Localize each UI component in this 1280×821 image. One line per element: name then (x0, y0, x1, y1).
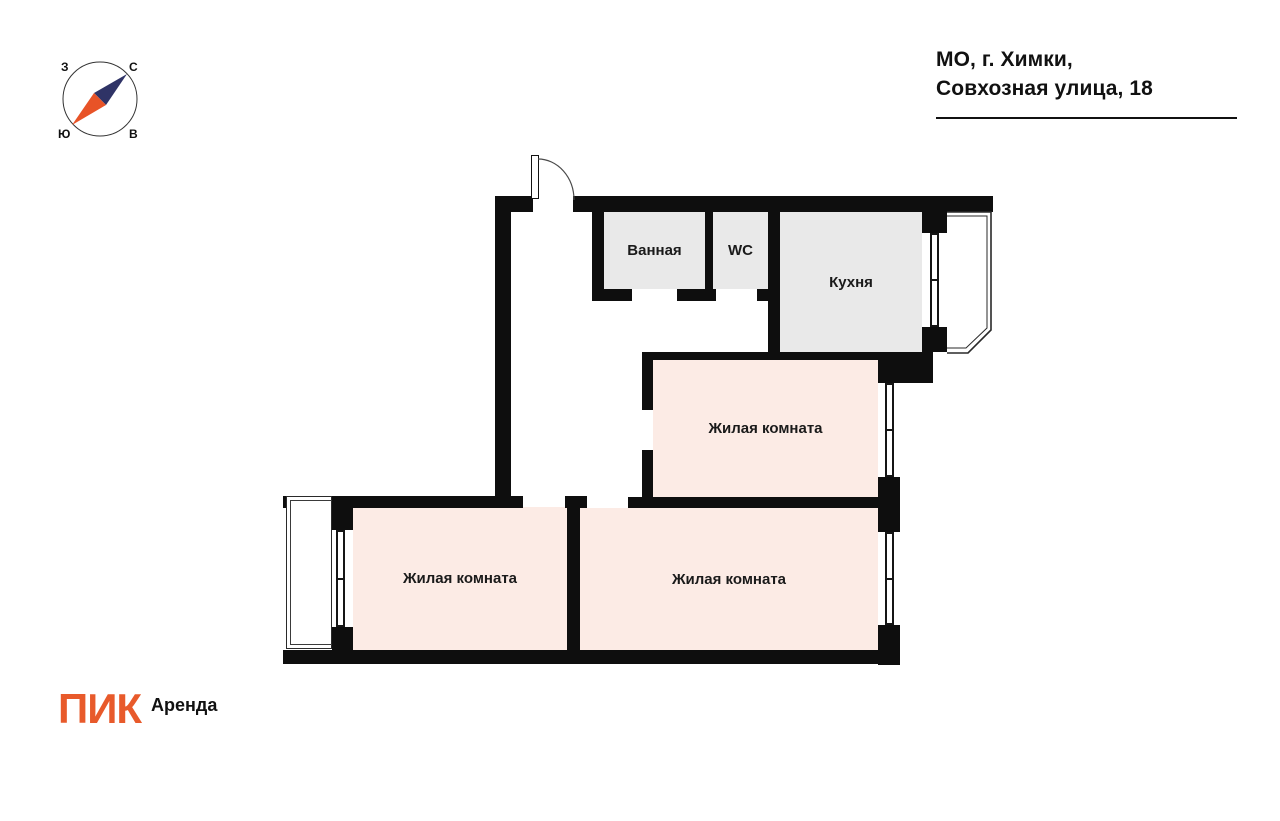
room-living-bottom-left-label: Жилая комната (403, 570, 517, 587)
balcony-left-inner-line (290, 500, 332, 645)
wall (768, 212, 780, 360)
wall (642, 352, 653, 410)
wall (283, 650, 900, 664)
wall (573, 196, 993, 212)
room-living-bottom-left: Жилая комната (353, 507, 567, 650)
bay-window-kitchen (940, 206, 998, 358)
window (881, 532, 898, 625)
wall (592, 289, 632, 301)
wall (592, 212, 604, 301)
wall (878, 352, 933, 383)
pik-logo: ПИК Аренда (58, 688, 217, 730)
balcony-left (286, 496, 332, 649)
wall (495, 196, 511, 508)
room-bathroom: Ванная (604, 212, 705, 289)
logo-brand-text: ПИК (58, 688, 141, 730)
room-living-bottom-right: Жилая комната (580, 508, 878, 650)
wall (628, 497, 900, 508)
room-kitchen-label: Кухня (829, 274, 873, 291)
door-swing-arc (537, 156, 577, 202)
room-wc: WC (713, 212, 768, 289)
room-kitchen: Кухня (780, 212, 922, 352)
room-living-middle-label: Жилая комната (708, 420, 822, 437)
wall (567, 497, 580, 650)
page: З С Ю В МО, г. Химки, Совхозная улица, 1… (0, 0, 1280, 821)
room-living-middle: Жилая комната (653, 360, 878, 497)
room-bathroom-label: Ванная (627, 242, 681, 259)
wall (332, 507, 353, 530)
logo-product-text: Аренда (151, 695, 217, 716)
wall (677, 289, 716, 301)
wall (705, 212, 713, 301)
window (881, 383, 898, 477)
room-wc-label: WC (728, 242, 753, 259)
wall (332, 627, 353, 652)
room-living-bottom-right-label: Жилая комната (672, 571, 786, 588)
window (332, 530, 349, 627)
wall (757, 289, 780, 301)
